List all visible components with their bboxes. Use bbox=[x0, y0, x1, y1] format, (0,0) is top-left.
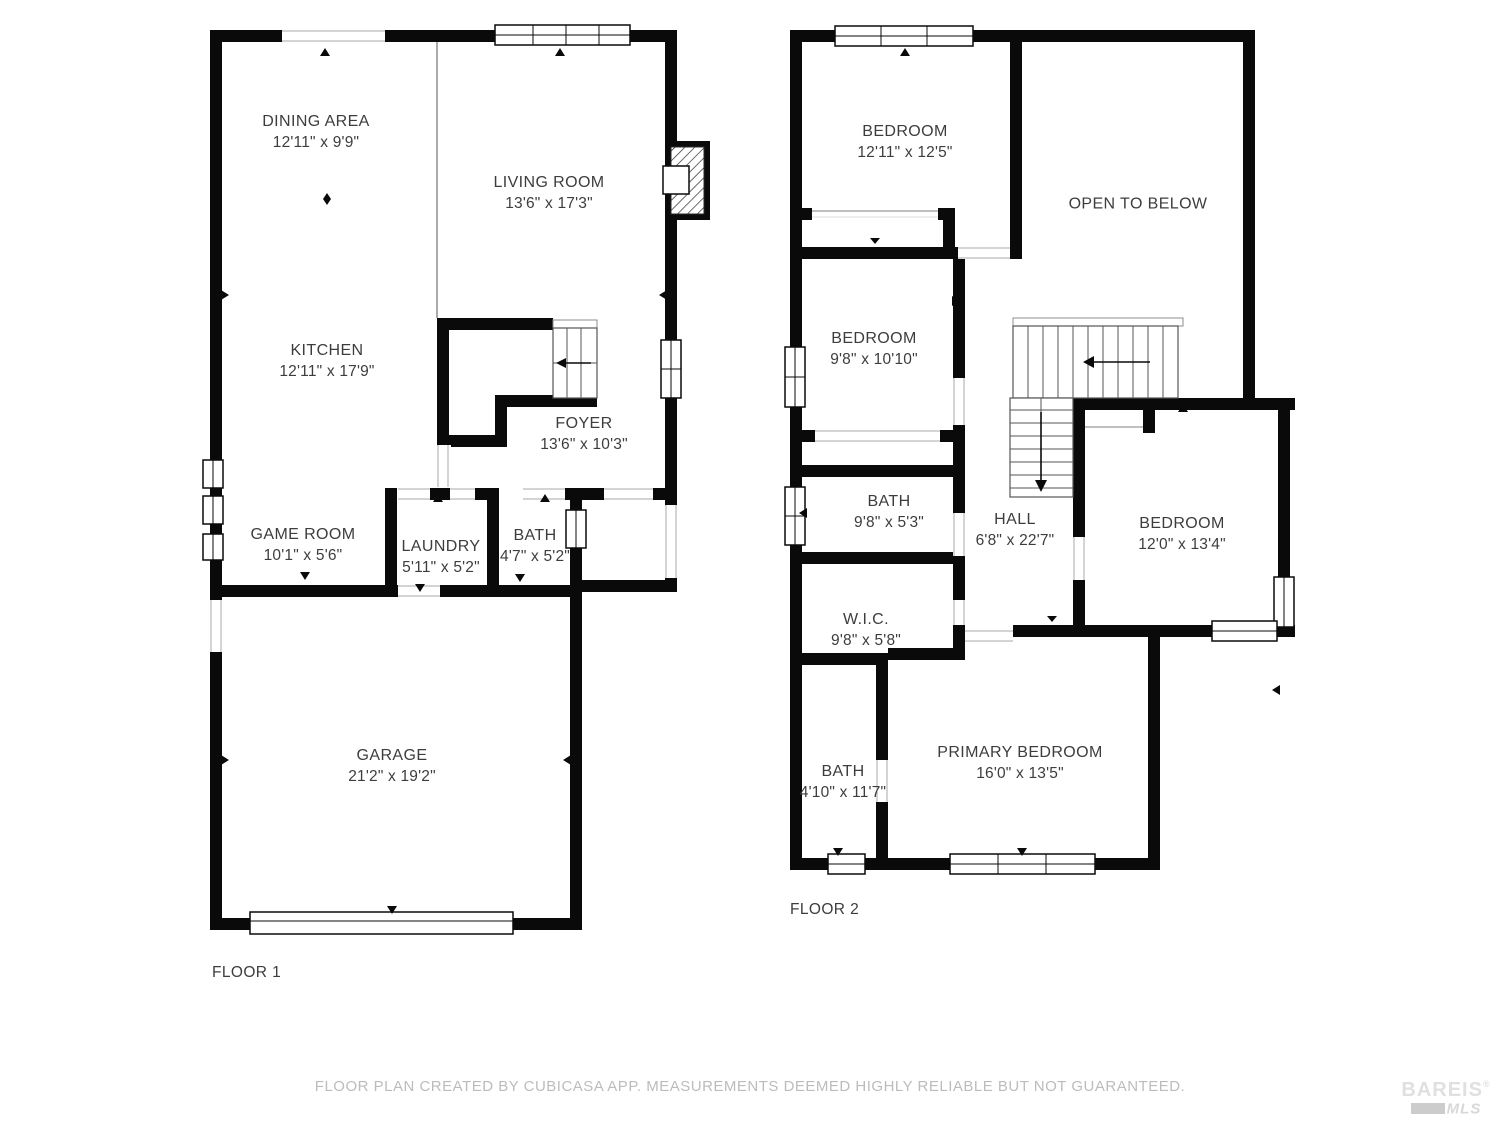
room-dims: 9'8" x 5'8" bbox=[831, 630, 901, 651]
room-label-bath-floor2-upper: BATH 9'8" x 5'3" bbox=[854, 491, 924, 533]
room-dims: 16'0" x 13'5" bbox=[937, 763, 1102, 784]
room-dims: 12'11" x 17'9" bbox=[279, 361, 374, 382]
room-label-open-to-below: OPEN TO BELOW bbox=[1069, 194, 1208, 215]
room-name: BATH bbox=[500, 525, 570, 546]
floor2-label: FLOOR 2 bbox=[790, 901, 859, 919]
floor1-stairs bbox=[553, 320, 597, 398]
room-dims: 12'11" x 12'5" bbox=[857, 142, 952, 163]
floor1-plan bbox=[203, 25, 710, 934]
room-dims: 10'1" x 5'6" bbox=[251, 545, 356, 566]
room-label-foyer: FOYER 13'6" x 10'3" bbox=[540, 413, 628, 455]
room-dims: 4'10" x 11'7" bbox=[800, 782, 886, 803]
room-name: KITCHEN bbox=[279, 340, 374, 361]
room-name: BATH bbox=[800, 761, 886, 782]
room-name: LAUNDRY bbox=[402, 536, 481, 557]
floorplan-canvas bbox=[0, 0, 1500, 1125]
room-name: GARAGE bbox=[348, 745, 436, 766]
room-dims: 13'6" x 10'3" bbox=[540, 434, 628, 455]
room-label-laundry: LAUNDRY 5'11" x 5'2" bbox=[402, 536, 481, 578]
room-dims: 9'8" x 10'10" bbox=[830, 349, 918, 370]
logo-bar-icon bbox=[1411, 1103, 1445, 1114]
room-name: DINING AREA bbox=[262, 111, 370, 132]
room-label-garage: GARAGE 21'2" x 19'2" bbox=[348, 745, 436, 787]
room-label-dining-area: DINING AREA 12'11" x 9'9" bbox=[262, 111, 370, 153]
room-dims: 6'8" x 22'7" bbox=[976, 530, 1055, 551]
room-name: BEDROOM bbox=[857, 121, 952, 142]
room-label-bath-floor1: BATH 4'7" x 5'2" bbox=[500, 525, 570, 567]
room-label-primary-bedroom: PRIMARY BEDROOM 16'0" x 13'5" bbox=[937, 742, 1102, 784]
room-label-bedroom-2: BEDROOM 9'8" x 10'10" bbox=[830, 328, 918, 370]
room-dims: 9'8" x 5'3" bbox=[854, 512, 924, 533]
room-dims: 13'6" x 17'3" bbox=[493, 193, 604, 214]
room-dims: 5'11" x 5'2" bbox=[402, 557, 481, 578]
room-label-hall: HALL 6'8" x 22'7" bbox=[976, 509, 1055, 551]
room-dims: 21'2" x 19'2" bbox=[348, 766, 436, 787]
room-label-bedroom-3: BEDROOM 12'0" x 13'4" bbox=[1138, 513, 1226, 555]
room-name: W.I.C. bbox=[831, 609, 901, 630]
room-name: BEDROOM bbox=[1138, 513, 1226, 534]
disclaimer-text: FLOOR PLAN CREATED BY CUBICASA APP. MEAS… bbox=[0, 1078, 1500, 1095]
room-label-bath-floor2-lower: BATH 4'10" x 11'7" bbox=[800, 761, 886, 803]
room-name: GAME ROOM bbox=[251, 524, 356, 545]
logo-brand: BAREIS bbox=[1401, 1079, 1483, 1101]
floor1-label: FLOOR 1 bbox=[212, 964, 281, 982]
room-name: BATH bbox=[854, 491, 924, 512]
room-name: FOYER bbox=[540, 413, 628, 434]
room-label-kitchen: KITCHEN 12'11" x 17'9" bbox=[279, 340, 374, 382]
room-label-wic: W.I.C. 9'8" x 5'8" bbox=[831, 609, 901, 651]
room-name: PRIMARY BEDROOM bbox=[937, 742, 1102, 763]
room-label-living-room: LIVING ROOM 13'6" x 17'3" bbox=[493, 172, 604, 214]
room-label-bedroom-1: BEDROOM 12'11" x 12'5" bbox=[857, 121, 952, 163]
room-name: OPEN TO BELOW bbox=[1069, 194, 1208, 215]
room-dims: 4'7" x 5'2" bbox=[500, 546, 570, 567]
registered-mark-icon: ® bbox=[1483, 1079, 1491, 1089]
room-label-game-room: GAME ROOM 10'1" x 5'6" bbox=[251, 524, 356, 566]
fireplace-icon bbox=[663, 141, 710, 220]
logo-sub: MLS bbox=[1447, 1100, 1482, 1117]
room-dims: 12'0" x 13'4" bbox=[1138, 534, 1226, 555]
bareis-mls-logo: BAREIS® MLS bbox=[1396, 1080, 1496, 1115]
room-dims: 12'11" x 9'9" bbox=[262, 132, 370, 153]
room-name: BEDROOM bbox=[830, 328, 918, 349]
room-name: HALL bbox=[976, 509, 1055, 530]
room-name: LIVING ROOM bbox=[493, 172, 604, 193]
